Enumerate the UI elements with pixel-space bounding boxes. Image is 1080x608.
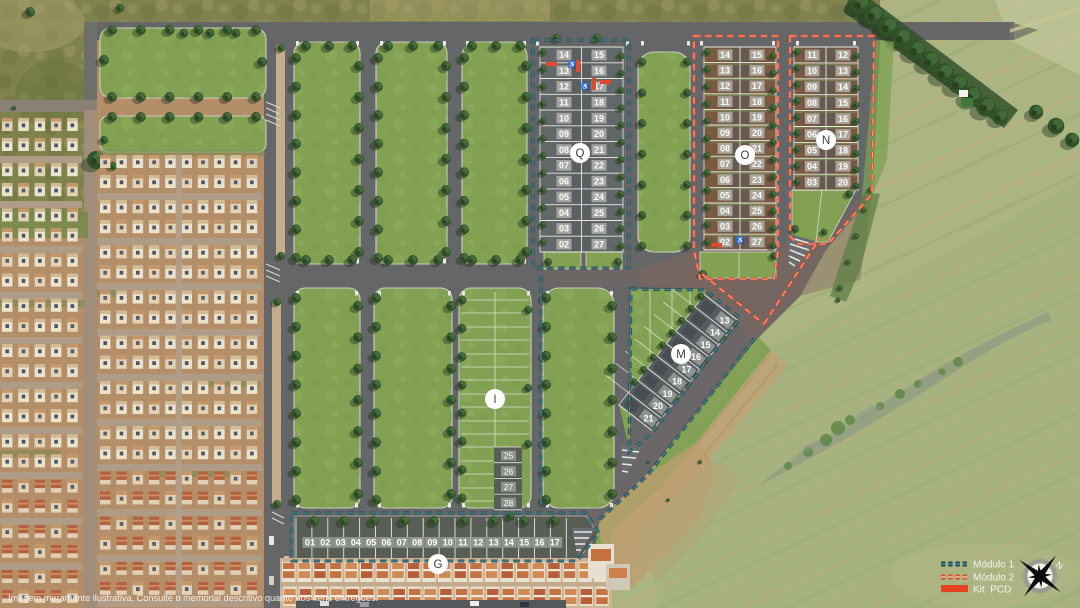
svg-text:07: 07 bbox=[397, 538, 407, 548]
svg-text:14: 14 bbox=[559, 50, 569, 60]
svg-text:18: 18 bbox=[752, 97, 762, 107]
svg-text:14: 14 bbox=[720, 50, 730, 60]
svg-text:05: 05 bbox=[720, 190, 730, 200]
svg-text:19: 19 bbox=[752, 112, 762, 122]
svg-text:19: 19 bbox=[594, 113, 604, 123]
svg-text:02: 02 bbox=[559, 239, 569, 249]
svg-text:26: 26 bbox=[504, 466, 514, 476]
svg-text:11: 11 bbox=[807, 50, 817, 60]
svg-text:13: 13 bbox=[838, 66, 848, 76]
svg-text:13: 13 bbox=[720, 66, 730, 76]
svg-text:15: 15 bbox=[838, 98, 848, 108]
svg-text:N: N bbox=[822, 135, 830, 147]
svg-text:02: 02 bbox=[320, 538, 330, 548]
svg-text:21: 21 bbox=[594, 145, 604, 155]
svg-text:06: 06 bbox=[381, 538, 391, 548]
svg-text:11: 11 bbox=[458, 538, 468, 548]
svg-text:M: M bbox=[676, 349, 686, 361]
svg-text:16: 16 bbox=[752, 66, 762, 76]
svg-text:05: 05 bbox=[807, 146, 817, 156]
svg-text:05: 05 bbox=[366, 538, 376, 548]
svg-text:06: 06 bbox=[559, 176, 569, 186]
svg-text:08: 08 bbox=[720, 144, 730, 154]
svg-text:07: 07 bbox=[720, 159, 730, 169]
svg-text:16: 16 bbox=[594, 66, 604, 76]
svg-text:10: 10 bbox=[807, 66, 817, 76]
svg-text:I: I bbox=[493, 394, 496, 406]
svg-text:16: 16 bbox=[838, 114, 848, 124]
svg-text:18: 18 bbox=[672, 377, 682, 387]
svg-text:12: 12 bbox=[473, 538, 483, 548]
svg-text:04: 04 bbox=[351, 538, 361, 548]
svg-text:01: 01 bbox=[305, 538, 315, 548]
svg-text:24: 24 bbox=[752, 190, 762, 200]
svg-text:21: 21 bbox=[643, 413, 653, 423]
svg-text:G: G bbox=[434, 559, 443, 571]
svg-text:25: 25 bbox=[504, 451, 514, 461]
svg-text:10: 10 bbox=[443, 538, 453, 548]
svg-text:26: 26 bbox=[594, 224, 604, 234]
svg-text:Módulo 1: Módulo 1 bbox=[973, 560, 1015, 571]
svg-text:20: 20 bbox=[653, 401, 663, 411]
svg-text:17: 17 bbox=[838, 130, 848, 140]
svg-text:22: 22 bbox=[594, 161, 604, 171]
svg-text:20: 20 bbox=[594, 129, 604, 139]
svg-text:12: 12 bbox=[559, 82, 569, 92]
svg-text:04: 04 bbox=[720, 206, 730, 216]
svg-text:08: 08 bbox=[559, 145, 569, 155]
svg-text:27: 27 bbox=[594, 239, 604, 249]
svg-text:16: 16 bbox=[691, 352, 701, 362]
svg-text:19: 19 bbox=[662, 389, 672, 399]
svg-text:17: 17 bbox=[550, 538, 560, 548]
svg-text:26: 26 bbox=[752, 222, 762, 232]
svg-text:09: 09 bbox=[720, 128, 730, 138]
svg-text:15: 15 bbox=[594, 50, 604, 60]
svg-text:23: 23 bbox=[594, 176, 604, 186]
svg-text:04: 04 bbox=[559, 208, 569, 218]
svg-text:25: 25 bbox=[752, 206, 762, 216]
svg-text:06: 06 bbox=[807, 130, 817, 140]
svg-text:20: 20 bbox=[838, 177, 848, 187]
svg-text:14: 14 bbox=[504, 538, 514, 548]
svg-text:Imagem meramente ilustrativa.: Imagem meramente ilustrativa. Consulte o… bbox=[8, 593, 378, 603]
svg-text:10: 10 bbox=[720, 112, 730, 122]
svg-text:19: 19 bbox=[838, 162, 848, 172]
svg-text:11: 11 bbox=[559, 98, 569, 108]
svg-text:12: 12 bbox=[720, 81, 730, 91]
svg-text:17: 17 bbox=[752, 81, 762, 91]
svg-text:24: 24 bbox=[594, 192, 604, 202]
svg-text:03: 03 bbox=[336, 538, 346, 548]
svg-text:O: O bbox=[741, 150, 750, 162]
svg-text:08: 08 bbox=[412, 538, 422, 548]
svg-text:15: 15 bbox=[519, 538, 529, 548]
svg-text:15: 15 bbox=[700, 340, 710, 350]
svg-text:27: 27 bbox=[504, 482, 514, 492]
svg-text:11: 11 bbox=[720, 97, 730, 107]
svg-text:Módulo 2: Módulo 2 bbox=[973, 573, 1015, 584]
svg-text:28: 28 bbox=[504, 498, 514, 508]
svg-text:05: 05 bbox=[559, 192, 569, 202]
svg-text:09: 09 bbox=[807, 82, 817, 92]
svg-text:10: 10 bbox=[559, 113, 569, 123]
svg-text:07: 07 bbox=[559, 161, 569, 171]
svg-text:14: 14 bbox=[838, 82, 848, 92]
svg-text:18: 18 bbox=[838, 146, 848, 156]
svg-text:Q: Q bbox=[576, 148, 585, 160]
svg-text:27: 27 bbox=[752, 237, 762, 247]
svg-text:03: 03 bbox=[559, 224, 569, 234]
svg-text:08: 08 bbox=[807, 98, 817, 108]
svg-text:23: 23 bbox=[752, 175, 762, 185]
svg-text:03: 03 bbox=[720, 222, 730, 232]
svg-text:17: 17 bbox=[681, 364, 691, 374]
svg-text:06: 06 bbox=[720, 175, 730, 185]
svg-text:16: 16 bbox=[534, 538, 544, 548]
svg-text:14: 14 bbox=[710, 328, 720, 338]
svg-text:03: 03 bbox=[807, 177, 817, 187]
svg-text:09: 09 bbox=[427, 538, 437, 548]
svg-text:Kit PCD: Kit PCD bbox=[973, 585, 1011, 596]
svg-text:09: 09 bbox=[559, 129, 569, 139]
svg-text:07: 07 bbox=[807, 114, 817, 124]
svg-text:04: 04 bbox=[807, 162, 817, 172]
svg-text:25: 25 bbox=[594, 208, 604, 218]
svg-text:22: 22 bbox=[752, 159, 762, 169]
svg-text:15: 15 bbox=[752, 50, 762, 60]
svg-text:18: 18 bbox=[594, 98, 604, 108]
svg-text:12: 12 bbox=[838, 50, 848, 60]
svg-text:20: 20 bbox=[752, 128, 762, 138]
svg-text:13: 13 bbox=[489, 538, 499, 548]
svg-text:13: 13 bbox=[719, 315, 729, 325]
